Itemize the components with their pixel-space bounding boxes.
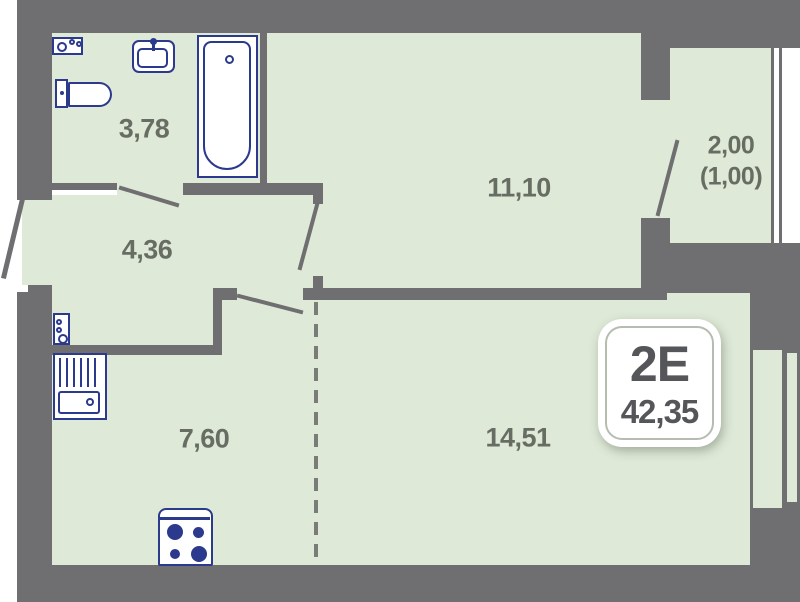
window-sill-strip xyxy=(753,350,782,508)
wall-top xyxy=(17,0,800,33)
room-area-kitchen: 7,60 xyxy=(179,424,230,455)
bathroom-door-opening xyxy=(117,183,183,195)
wall-bedroom-living xyxy=(303,288,667,300)
apartment-type-badge: 2Е 42,35 xyxy=(598,319,721,447)
window-glazing-strip xyxy=(787,353,797,502)
electrical-panel-icon xyxy=(52,37,83,55)
stove-icon xyxy=(158,508,213,566)
wall-bedroom-door-jamb-top xyxy=(313,183,323,204)
wall-bedroom-balcony-lower xyxy=(641,218,670,250)
room-area-balcony: 2,00 xyxy=(708,132,755,161)
apartment-type-label: 2Е xyxy=(630,339,689,389)
meter-box-icon xyxy=(53,313,70,345)
wall-left-upper xyxy=(17,0,52,200)
washbasin-icon xyxy=(132,40,175,73)
living-door-opening xyxy=(237,288,303,300)
floor-plan: 3,78 4,36 11,10 2,00 (1,00) 7,60 14,51 2… xyxy=(0,0,800,602)
kitchen-sink-icon xyxy=(53,353,107,420)
wall-bedroom-balcony-upper xyxy=(641,33,670,100)
apartment-type-badge-inner: 2Е 42,35 xyxy=(605,326,714,440)
wall-balcony-bottom xyxy=(641,243,800,293)
room-area-balcony-coefficient: (1,00) xyxy=(700,163,762,192)
toilet-cistern-icon xyxy=(55,79,68,108)
bathtub-icon xyxy=(197,35,258,178)
entrance-door-leaf xyxy=(4,201,22,276)
room-area-bedroom: 11,10 xyxy=(487,173,551,204)
room-area-bathroom: 3,78 xyxy=(119,114,170,145)
apartment-total-area: 42,35 xyxy=(621,395,699,428)
wall-bathroom-bedroom xyxy=(260,33,267,183)
balcony-glazing-line-2 xyxy=(779,48,782,243)
room-bedroom-floor xyxy=(267,33,641,288)
wall-bottom xyxy=(17,565,800,602)
balcony-glazing-line-1 xyxy=(771,48,774,243)
bedroom-door-opening xyxy=(313,204,323,276)
room-hallway-floor-lower xyxy=(52,288,213,345)
wall-bathroom-south xyxy=(183,183,320,195)
room-area-living: 14,51 xyxy=(485,423,550,454)
entrance-door-opening xyxy=(22,200,52,285)
wall-hall-living-stub xyxy=(222,288,237,300)
room-hallway-floor xyxy=(52,195,313,288)
balcony-door-opening xyxy=(641,100,670,218)
room-area-hallway: 4,36 xyxy=(122,235,173,266)
wall-left-lower xyxy=(17,292,52,602)
toilet-bowl-icon xyxy=(68,82,112,107)
wall-bathroom-south-thin xyxy=(50,183,117,190)
